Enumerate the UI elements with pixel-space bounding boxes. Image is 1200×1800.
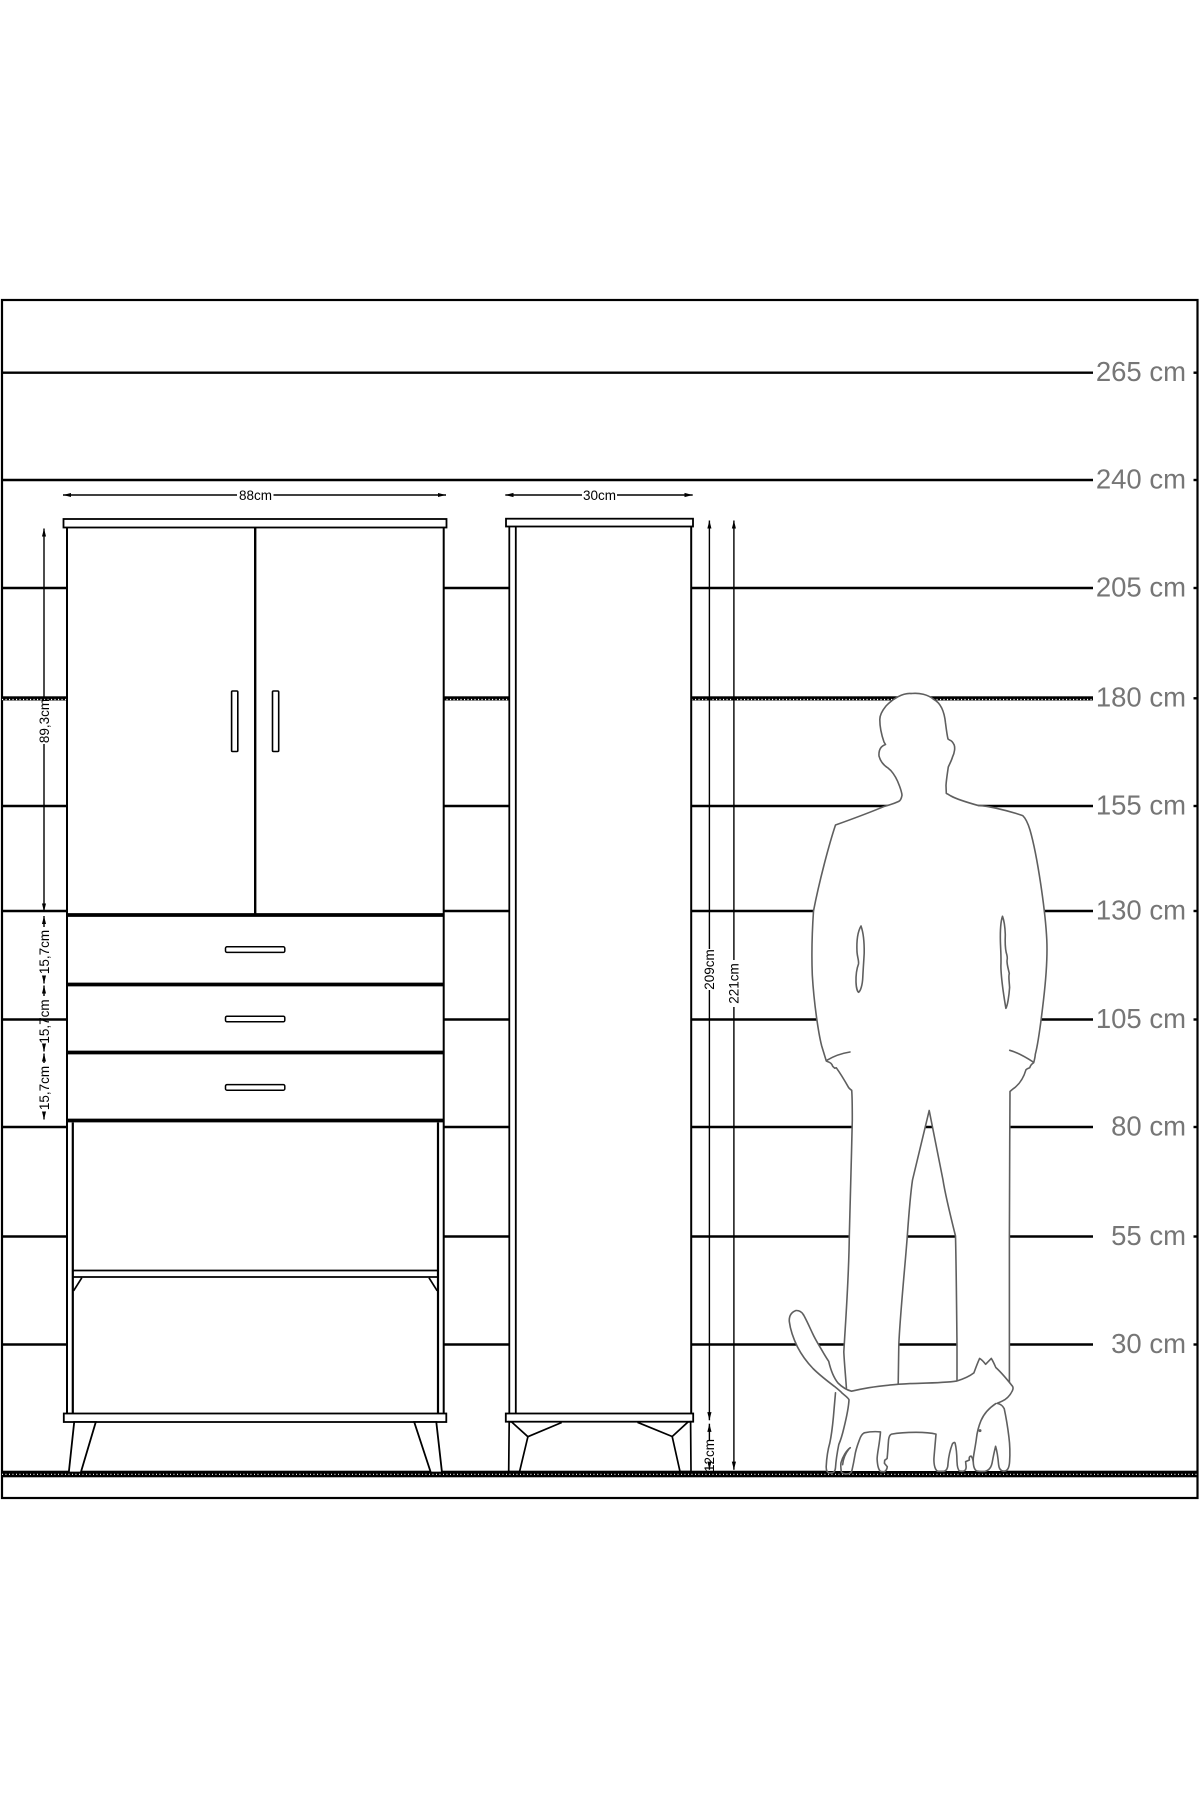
svg-text:89,3cm: 89,3cm — [37, 699, 52, 743]
svg-text:88cm: 88cm — [239, 488, 272, 503]
svg-text:55 cm: 55 cm — [1111, 1220, 1186, 1251]
svg-text:155 cm: 155 cm — [1096, 789, 1186, 820]
svg-text:180 cm: 180 cm — [1096, 682, 1186, 713]
svg-text:130 cm: 130 cm — [1096, 894, 1186, 925]
svg-text:240 cm: 240 cm — [1096, 463, 1186, 494]
svg-text:105 cm: 105 cm — [1096, 1003, 1186, 1034]
svg-text:221cm: 221cm — [727, 963, 742, 1004]
svg-text:15,7cm: 15,7cm — [37, 999, 52, 1043]
svg-text:265 cm: 265 cm — [1096, 356, 1186, 387]
svg-text:30 cm: 30 cm — [1111, 1328, 1186, 1359]
svg-text:205 cm: 205 cm — [1096, 571, 1186, 602]
svg-text:12cm: 12cm — [702, 1439, 717, 1472]
svg-text:15,7cm: 15,7cm — [37, 1066, 52, 1110]
svg-text:209cm: 209cm — [702, 949, 717, 990]
svg-text:80 cm: 80 cm — [1111, 1110, 1186, 1141]
svg-text:15,7cm: 15,7cm — [37, 930, 52, 974]
svg-text:30cm: 30cm — [583, 488, 616, 503]
